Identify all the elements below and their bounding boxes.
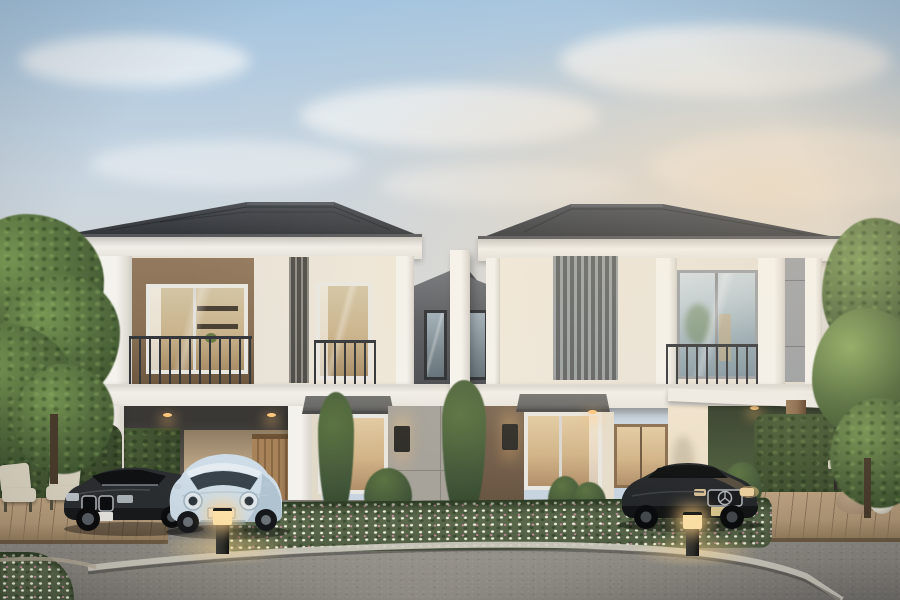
center-narrow-window-left (424, 310, 447, 380)
wall-sconce (394, 426, 410, 452)
bollard-lamp-light (683, 512, 702, 529)
downlight (267, 413, 276, 417)
right-inner-column (486, 258, 500, 386)
right-window-awning (516, 394, 610, 412)
right-house-upper-wall (486, 258, 822, 386)
cloud (20, 35, 250, 87)
left-tree-cluster (0, 214, 132, 494)
wall-sconce (502, 424, 518, 450)
curtain (589, 416, 598, 486)
tree-canopy (14, 364, 114, 474)
bollard-lamp-light (213, 508, 232, 525)
downlight (750, 406, 759, 410)
tree-trunk (864, 458, 871, 518)
right-outer-column (758, 258, 785, 386)
left-inner-column (396, 256, 414, 386)
left-juliet-railing (314, 340, 376, 389)
right-tree-cluster (812, 218, 900, 518)
left-balcony-railing (129, 336, 252, 391)
left-louver-screen (289, 257, 309, 383)
tree-trunk (50, 414, 58, 484)
pale-blue-hatchback-car (162, 444, 302, 540)
downlight (588, 410, 597, 414)
right-louver-screen (553, 256, 618, 380)
duplex-exterior-render (0, 0, 900, 600)
right-gray-panels (785, 258, 805, 382)
downlight (163, 413, 172, 417)
chair-legs (4, 502, 32, 512)
bollard-lamp-post (216, 520, 229, 554)
left-house-upper-wall (88, 256, 414, 386)
